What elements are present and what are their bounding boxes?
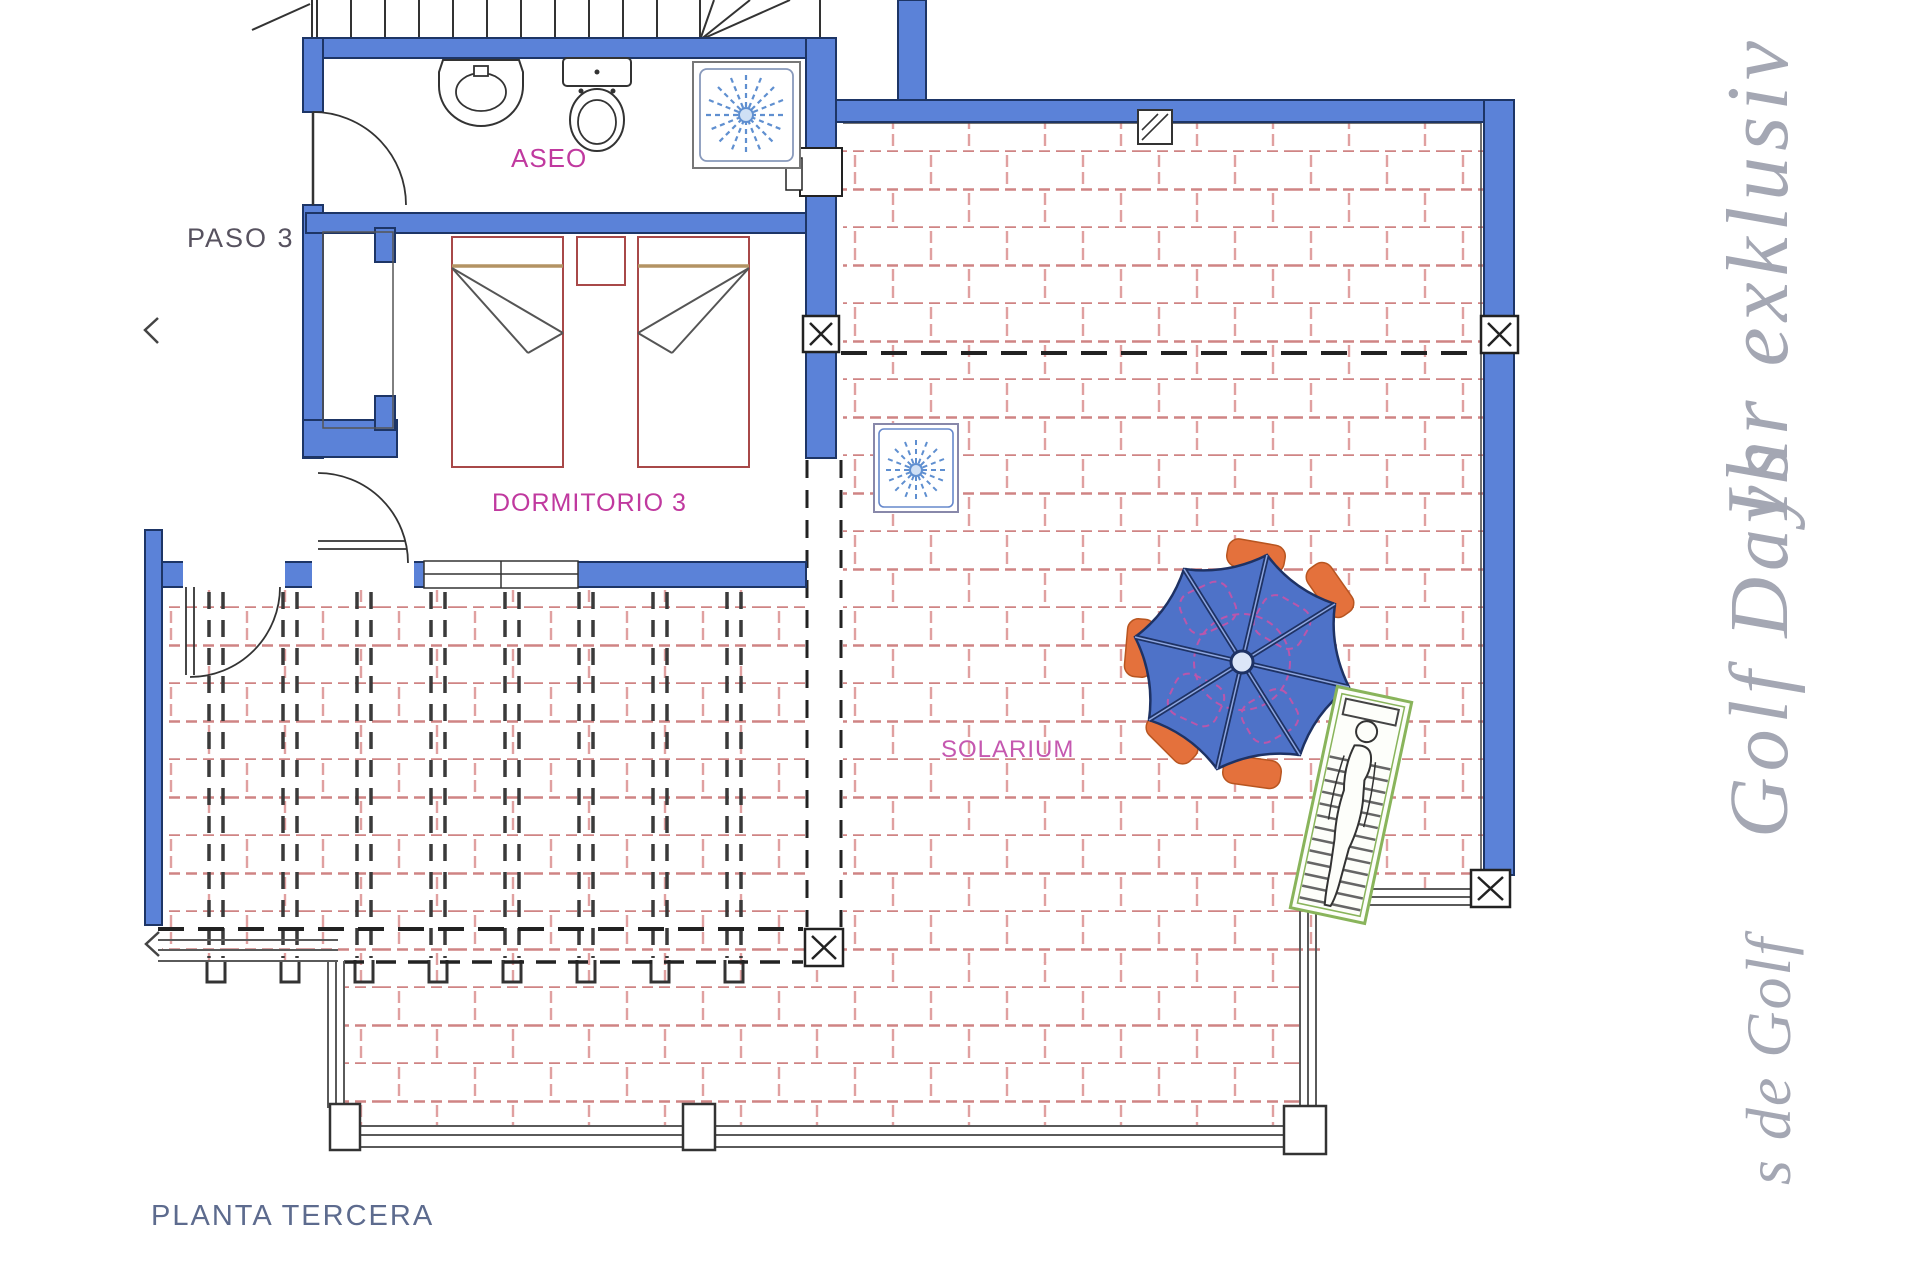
shower-sunburst-icon: [693, 62, 800, 168]
staircase: [252, 0, 820, 40]
terrace-tiles-bottom: [345, 962, 1300, 1126]
wall-openings: [183, 560, 578, 589]
plan-title: PLANTA TERCERA: [151, 1200, 434, 1232]
room-label-solarium: SOLARIUM: [941, 736, 1074, 763]
column-x-marker: [1481, 316, 1518, 353]
wall-solarium-north: [836, 100, 1514, 122]
bed: [452, 237, 563, 467]
bed: [638, 237, 749, 467]
watermark-text-middle: Golf Days: [1713, 441, 1806, 838]
column-x-marker: [803, 316, 839, 352]
wall-west-outer: [145, 530, 162, 925]
wall-aseo-north: [306, 38, 806, 58]
parasol-hub: [1231, 651, 1253, 673]
duct-box: [800, 148, 842, 196]
pillar: [1284, 1106, 1326, 1154]
upper-floor-edge-strip: [807, 460, 841, 927]
door-swing-aseo: [313, 112, 406, 205]
wall-east-inner: [806, 38, 836, 458]
floor-plan-page: ASEO PASO 3 DORMITORIO 3 SOLARIUM PLANTA…: [0, 0, 1920, 1280]
room-label-aseo: ASEO: [511, 143, 587, 173]
roof-hatch-icon: [1138, 110, 1172, 144]
room-label-paso: PASO 3: [187, 223, 295, 253]
pillar: [330, 1104, 360, 1150]
floor-plan-drawing: ASEO PASO 3 DORMITORIO 3 SOLARIUM PLANTA…: [0, 0, 1920, 1280]
closet-jamb-bottom: [375, 396, 395, 430]
cut-mark-icon: [146, 932, 159, 956]
stair-winders: [700, 0, 790, 40]
nightstand: [577, 237, 625, 285]
column-x-marker: [1471, 870, 1510, 907]
door-opening-dormitorio: [312, 560, 414, 589]
cut-mark-icon: [145, 318, 158, 343]
railing-bottom: [344, 1126, 1300, 1147]
column-x-marker: [805, 929, 843, 966]
toilet-icon: [563, 58, 631, 151]
door-leaf-dormitorio: [318, 541, 406, 549]
railing-left-side: [328, 961, 344, 1108]
closet-jamb-top: [375, 228, 395, 262]
sink-icon: [439, 60, 523, 126]
watermark-text-bottom: s de Golf: [1733, 930, 1804, 1185]
door-opening-terrace: [183, 560, 285, 589]
solarium-tiles-lower: [843, 888, 1322, 963]
room-label-dormitorio: DORMITORIO 3: [492, 489, 687, 517]
beds: [452, 237, 749, 467]
wall-aseo-west: [303, 38, 323, 112]
stair-direction-line: [252, 4, 310, 30]
wall-solarium-east: [1484, 100, 1514, 875]
solarium-sunburst-icon: [874, 424, 958, 512]
pillar: [683, 1104, 715, 1150]
